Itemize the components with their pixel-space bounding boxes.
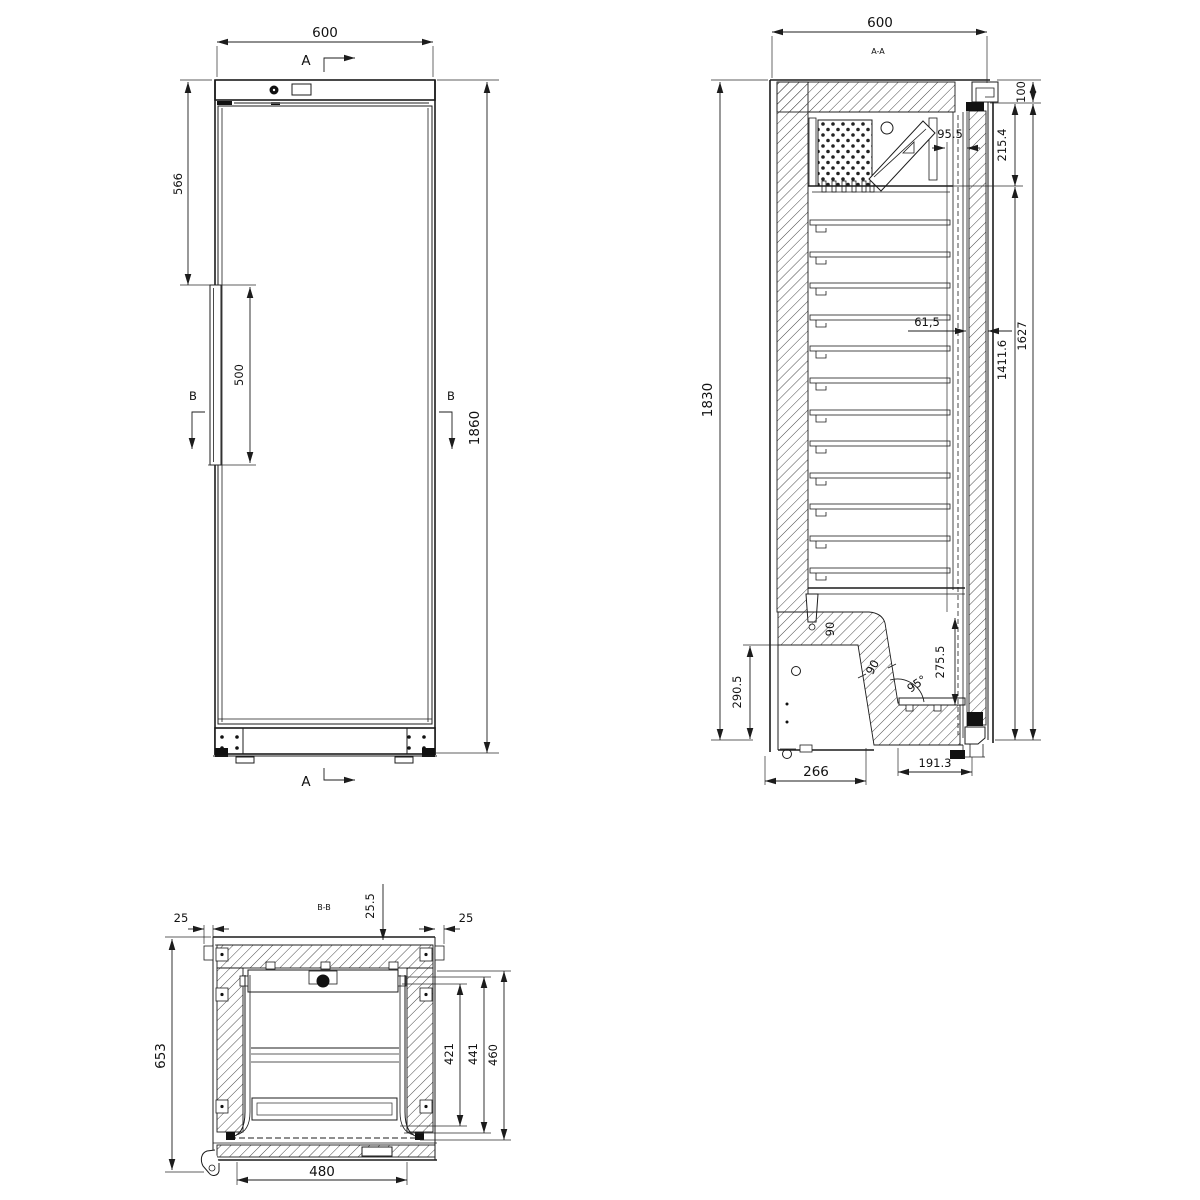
front-foot-right bbox=[395, 757, 413, 763]
dim-compressor-zone: 290.5 bbox=[730, 676, 744, 709]
evaporator-compartment bbox=[808, 118, 953, 192]
thermostat-display bbox=[292, 84, 311, 95]
dim-handle-length: 500 bbox=[232, 364, 246, 386]
top-wall-insulation bbox=[777, 82, 955, 112]
rear-roller bbox=[783, 750, 792, 759]
dim-bottom-front-height: 275.5 bbox=[933, 646, 947, 679]
front-cabinet-outline bbox=[215, 80, 435, 755]
dim-side-left: 25 bbox=[174, 911, 189, 925]
door-lock-center bbox=[273, 89, 275, 91]
control-panel-strip bbox=[215, 80, 435, 100]
section-a-label-bottom: A bbox=[301, 774, 311, 790]
plan-view-label: B-B bbox=[317, 903, 331, 912]
door-insulation bbox=[969, 111, 986, 725]
technical-drawing-page: 600 A A 566 500 B B 1860 A-A bbox=[0, 0, 1200, 1200]
angled-fan-shroud bbox=[869, 121, 935, 191]
bottom-hinge-pin bbox=[967, 712, 983, 726]
back-wall-insulation bbox=[777, 82, 808, 612]
compressor-mount-hole bbox=[792, 667, 801, 676]
evaporator-perforated-panel bbox=[818, 120, 872, 186]
dim-front-width: 600 bbox=[312, 25, 338, 41]
door-lock-plan bbox=[362, 1147, 392, 1156]
dim-evaporator-width: 95.5 bbox=[937, 127, 963, 141]
door-insulation-plan bbox=[217, 1145, 435, 1157]
side-door-section bbox=[958, 82, 998, 757]
dim-depth-liner: 441 bbox=[466, 1043, 480, 1065]
dim-floor-thickness: 90 bbox=[823, 622, 837, 637]
front-base-plinth bbox=[213, 728, 437, 763]
dim-front-clearance: 191.3 bbox=[919, 756, 952, 770]
dim-depth-door: 460 bbox=[486, 1044, 500, 1066]
dim-compressor-depth: 266 bbox=[803, 764, 829, 780]
dim-overall-depth: 653 bbox=[153, 1043, 169, 1069]
bottom-hinge-bracket bbox=[965, 727, 985, 744]
front-foot-left bbox=[236, 757, 254, 763]
dim-front-height: 1860 bbox=[467, 411, 483, 445]
side-section-view: A-A bbox=[700, 15, 1041, 785]
dim-evaporator-zone: 215.4 bbox=[995, 129, 1009, 162]
dim-side-width: 600 bbox=[867, 15, 893, 31]
technical-drawing-canvas: 600 A A 566 500 B B 1860 A-A bbox=[0, 0, 1200, 1200]
section-a-arrow-top bbox=[324, 58, 355, 72]
shelf-rails bbox=[810, 220, 950, 580]
side-view-label: A-A bbox=[871, 47, 885, 56]
front-view: 600 A A 566 500 B B 1860 bbox=[171, 25, 499, 790]
section-b-label-right: B bbox=[447, 389, 455, 403]
section-b-label-left: B bbox=[189, 389, 197, 403]
dim-top-hinge: 100 bbox=[1014, 81, 1028, 103]
dim-door-thickness: 61,5 bbox=[914, 315, 940, 329]
front-foot-block bbox=[950, 750, 965, 759]
dim-interior-height: 1627 bbox=[1015, 321, 1029, 350]
dim-handle-offset: 566 bbox=[171, 173, 185, 195]
dim-side-height: 1830 bbox=[700, 383, 716, 417]
door-handle-plan bbox=[201, 1150, 219, 1175]
section-b-arrow-right bbox=[439, 412, 452, 449]
plan-section-view: B-B bbox=[153, 884, 511, 1185]
dim-top-wall: 25.5 bbox=[363, 893, 377, 919]
plan-dimensions: 25.5 25 25 653 421 441 46 bbox=[153, 884, 511, 1185]
dim-door-opening: 480 bbox=[309, 1164, 335, 1180]
section-a-arrow-bottom bbox=[324, 768, 355, 780]
dim-side-right: 25 bbox=[459, 911, 474, 925]
plan-interior bbox=[229, 962, 421, 1138]
front-door-handle bbox=[210, 285, 221, 465]
section-a-label-top: A bbox=[301, 53, 311, 69]
section-b-arrow-left bbox=[192, 412, 205, 449]
fan-hub-icon bbox=[881, 122, 893, 134]
dim-shelf-zone: 1411.6 bbox=[995, 340, 1009, 380]
dim-depth-shelf: 421 bbox=[442, 1043, 456, 1065]
dim-base-angle: 95° bbox=[904, 672, 929, 695]
drain-port bbox=[317, 975, 330, 988]
